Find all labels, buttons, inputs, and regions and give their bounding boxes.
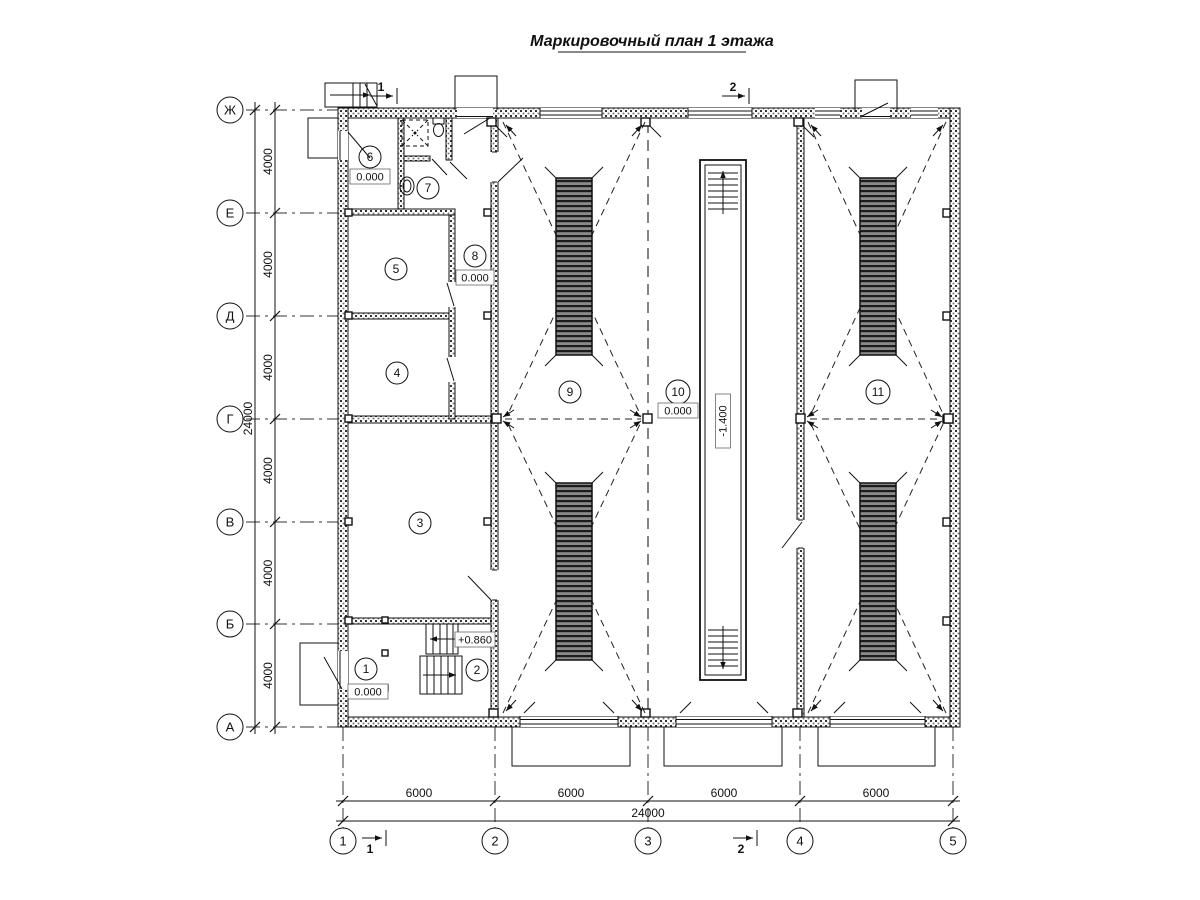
svg-text:Б: Б: [226, 617, 235, 632]
svg-text:1: 1: [339, 834, 346, 849]
dim-4000-6: 4000: [261, 662, 275, 689]
room-tag-7: 7: [417, 177, 439, 199]
floor-plan-drawing: Маркировочный план 1 этажа 4000 4000 4: [0, 0, 1200, 900]
svg-text:2: 2: [738, 842, 745, 856]
dim-4000-2: 4000: [261, 251, 275, 278]
pit-elevation: -1.400: [718, 405, 730, 436]
svg-text:Г: Г: [226, 412, 233, 427]
svg-text:8: 8: [472, 249, 479, 263]
svg-text:6: 6: [367, 150, 374, 164]
porch-bottom-left: [300, 643, 338, 705]
room-tag-6: 6: [359, 146, 381, 168]
axis-col-5: 5: [940, 828, 966, 854]
axis-row-d: Д: [217, 303, 243, 329]
wall-row-b: [348, 618, 491, 624]
elevation-room-10: 0.000: [664, 406, 692, 418]
wall-room6-7: [398, 118, 404, 209]
row-axis-bubbles: Ж Е Д Г В Б А: [217, 97, 243, 740]
svg-text:3: 3: [417, 516, 424, 530]
wall-row-g: [348, 416, 491, 423]
wall-wc-stall: [446, 118, 452, 160]
axis-col-4: 4: [787, 828, 813, 854]
svg-text:Е: Е: [226, 206, 235, 221]
dim-6000-2: 6000: [558, 786, 585, 800]
elevation-room-6: 0.000: [356, 172, 384, 184]
svg-text:7: 7: [425, 181, 432, 195]
drawing-title: Маркировочный план 1 этажа: [530, 33, 774, 52]
room-tag-3: 3: [409, 512, 431, 534]
svg-text:1: 1: [363, 662, 370, 676]
svg-text:4: 4: [394, 366, 401, 380]
room-tag-11: 11: [866, 380, 890, 404]
room-tag-10: 10: [666, 380, 690, 404]
svg-text:3: 3: [644, 834, 651, 849]
wall-shower-stub: [404, 156, 430, 161]
shower-drain-dot: [414, 132, 417, 135]
porch-top-right: [855, 80, 897, 112]
section-2-bottom: 2: [733, 830, 757, 856]
axis-col-2: 2: [482, 828, 508, 854]
svg-text:11: 11: [872, 385, 885, 399]
pit-ladder-bottom: [708, 626, 738, 669]
svg-text:1: 1: [378, 80, 385, 94]
svg-text:5: 5: [949, 834, 956, 849]
axis-row-a: А: [217, 714, 243, 740]
toilet-icon: [433, 118, 444, 137]
svg-text:9: 9: [567, 385, 574, 399]
svg-text:2: 2: [474, 663, 481, 677]
dim-4000-4: 4000: [261, 457, 275, 484]
axis-row-zh: Ж: [217, 97, 243, 123]
room-tag-2: 2: [466, 659, 488, 681]
room-tag-5: 5: [385, 258, 407, 280]
dim-6000-1: 6000: [406, 786, 433, 800]
svg-text:А: А: [226, 720, 235, 735]
loading-ramps: [512, 727, 935, 766]
svg-text:5: 5: [393, 262, 400, 276]
svg-text:10: 10: [671, 385, 685, 399]
svg-text:2: 2: [730, 80, 737, 94]
left-dimensions: 4000 4000 4000 4000 4000 4000 24000: [241, 102, 280, 734]
axis-col-1: 1: [330, 828, 356, 854]
room-tags: 1 2 3 4 5 6 7 8 9 10 11: [355, 146, 890, 681]
dim-6000-4: 6000: [863, 786, 890, 800]
dim-24000-bottom: 24000: [631, 806, 665, 820]
room-tag-1: 1: [355, 658, 377, 680]
wall-row-e: [348, 209, 455, 215]
exterior-door-openings: [338, 108, 890, 689]
inspection-pit: -1.400: [700, 160, 746, 680]
room-tag-8: 8: [464, 245, 486, 267]
porch-axis2-top: [455, 76, 497, 110]
elevation-room-1: 0.000: [354, 687, 382, 699]
svg-text:2: 2: [491, 834, 498, 849]
svg-text:Д: Д: [226, 309, 235, 324]
pit-ladder-top: [708, 171, 738, 214]
elevation-room-2: +0.860: [458, 635, 492, 647]
section-2-top: 2: [722, 80, 749, 104]
bottom-wall-gates: [520, 716, 925, 727]
room-tag-4: 4: [386, 362, 408, 384]
svg-text:4: 4: [796, 834, 803, 849]
axis-row-b: Б: [217, 611, 243, 637]
dim-4000-1: 4000: [261, 148, 275, 175]
wall-corridor: [449, 215, 455, 419]
floor-plan-page: Маркировочный план 1 этажа 4000 4000 4: [0, 0, 1200, 900]
col-axis-bubbles: 1 2 3 4 5: [330, 828, 966, 854]
svg-text:1: 1: [367, 842, 374, 856]
svg-text:В: В: [226, 515, 235, 530]
dim-6000-3: 6000: [711, 786, 738, 800]
external-stair: [325, 83, 377, 107]
wall-row-d: [348, 313, 455, 319]
svg-text:Ж: Ж: [224, 103, 236, 118]
elevation-room-8: 0.000: [461, 273, 489, 285]
room-tag-9: 9: [559, 381, 581, 403]
dim-4000-3: 4000: [261, 354, 275, 381]
section-1-bottom: 1: [362, 830, 386, 856]
porch-top-left: [308, 118, 338, 158]
axis-row-e: Е: [217, 200, 243, 226]
axis-row-v: В: [217, 509, 243, 535]
axis-col-3: 3: [635, 828, 661, 854]
page-title: Маркировочный план 1 этажа: [530, 33, 774, 50]
axis-row-g: Г: [217, 406, 243, 432]
dim-4000-5: 4000: [261, 559, 275, 586]
